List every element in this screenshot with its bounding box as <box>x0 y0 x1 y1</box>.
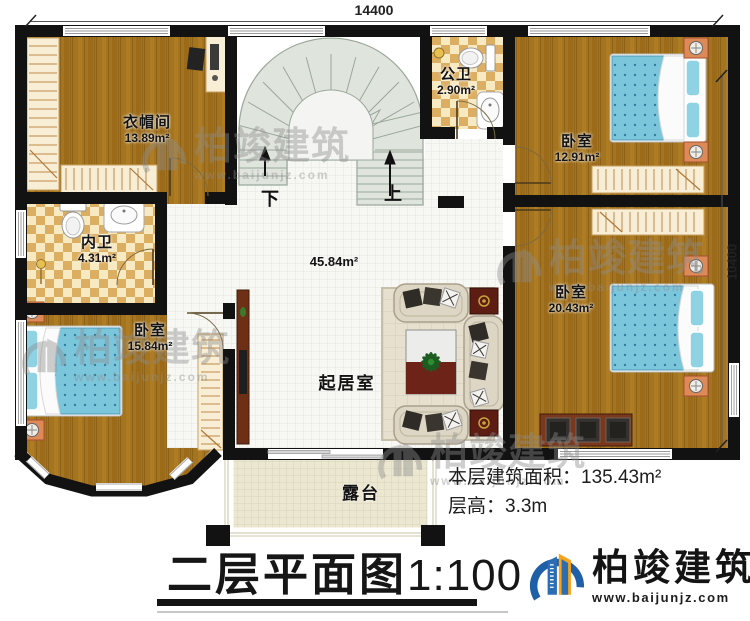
room-name: 卧室 <box>549 285 594 302</box>
plan-title-text: 二层平面图 <box>167 538 407 603</box>
bedroom-ne-wardrobe <box>592 166 704 193</box>
living-sofa-top <box>394 284 468 322</box>
bedroom-sw-bed <box>20 326 122 416</box>
floor-area-value: 135.43m² <box>581 467 661 488</box>
bedroom-se-tv-cabinet <box>540 414 632 446</box>
room-label-public-bath: 公卫 2.90m² <box>437 67 475 97</box>
room-label-cloakroom: 衣帽间 13.89m² <box>123 115 171 145</box>
floor-area-label: 本层建筑面积： <box>448 467 581 488</box>
living-display-cabinet <box>237 290 249 444</box>
terrace-deck <box>225 450 436 536</box>
floor-height-value: 3.3m <box>505 496 547 517</box>
room-name: 内卫 <box>78 235 116 252</box>
brand-url: www.baijunjz.com <box>592 590 750 605</box>
room-label-bedroom-se: 卧室 20.43m² <box>549 285 594 315</box>
room-name: 卧室 <box>128 323 173 340</box>
floor-area-note: 本层建筑面积：135.43m² <box>448 463 661 492</box>
room-name: 卧室 <box>555 134 600 151</box>
private-bath-toilet <box>60 202 86 238</box>
bedroom-sw-wardrobe <box>198 334 223 450</box>
plan-title: 二层平面图1:100 <box>167 538 522 603</box>
living-sofa-bottom <box>394 406 468 444</box>
bedroom-se-wardrobe <box>592 209 704 235</box>
bedroom-ne-bed <box>610 54 706 142</box>
bedroom-se-bed <box>610 284 714 372</box>
brand-name: 柏竣建筑 <box>592 549 750 586</box>
stair-down-label: 下 <box>261 185 279 211</box>
room-label-bedroom-sw: 卧室 15.84m² <box>128 323 173 353</box>
room-name: 衣帽间 <box>123 115 171 132</box>
dimension-top: 14400 <box>355 2 394 18</box>
living-coffee-table <box>406 330 456 394</box>
brand-logo: 柏竣建筑 www.baijunjz.com <box>528 545 750 609</box>
room-area: 15.84m² <box>128 340 173 353</box>
title-underline <box>157 599 477 606</box>
room-area: 4.31m² <box>78 252 116 265</box>
room-area: 12.91m² <box>555 151 600 164</box>
room-name: 公卫 <box>437 67 475 84</box>
title-underline-thin <box>157 611 508 613</box>
terrace-sliding-door <box>268 449 383 459</box>
terrace-name: 露台 <box>342 479 380 504</box>
living-room-area: 45.84m² <box>310 254 358 269</box>
living-room-name: 起居室 <box>319 369 376 394</box>
room-area: 13.89m² <box>123 132 171 145</box>
dimension-right: 10400 <box>725 244 740 280</box>
floor-height-label: 层高： <box>448 496 505 517</box>
room-area: 20.43m² <box>549 302 594 315</box>
room-area: 2.90m² <box>437 84 475 97</box>
plan-notes: 本层建筑面积：135.43m² 层高：3.3m <box>448 463 661 521</box>
floor-height-note: 层高：3.3m <box>448 492 661 521</box>
living-sofa-right <box>464 316 504 412</box>
stair-up-label: 上 <box>384 180 402 206</box>
public-bath-sink <box>477 92 504 129</box>
private-bath-sink <box>104 200 144 232</box>
brand-logo-icon <box>528 545 584 609</box>
floor-plan-drawing <box>0 0 750 621</box>
floor-plan-page: 柏竣建筑 www.baijunjz.com 柏竣建筑 www.baijunjz.… <box>0 0 750 621</box>
plan-title-scale: 1:100 <box>407 551 522 601</box>
room-label-private-bath: 内卫 4.31m² <box>78 235 116 265</box>
room-label-bedroom-ne: 卧室 12.91m² <box>555 134 600 164</box>
